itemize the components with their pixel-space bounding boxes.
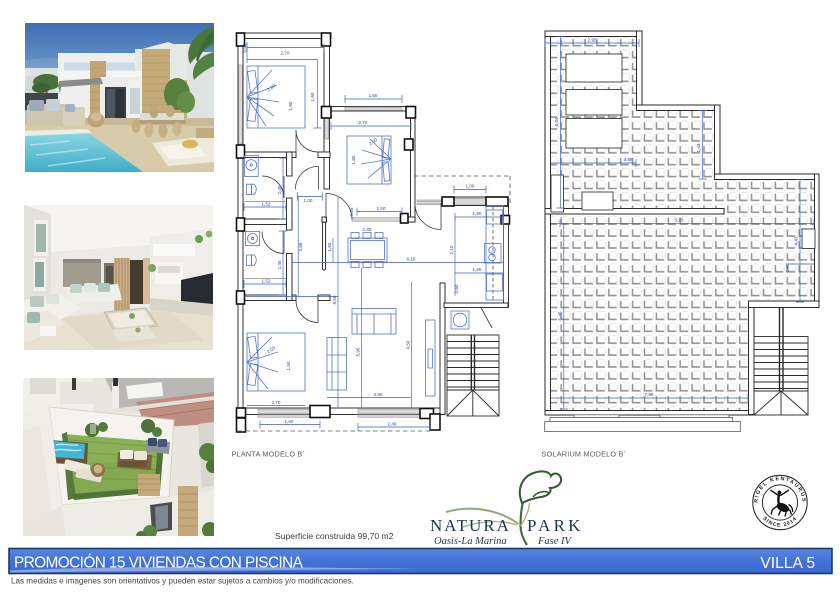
svg-text:3,86: 3,86: [298, 242, 303, 251]
svg-text:1,60: 1,60: [377, 206, 386, 211]
svg-text:1,50: 1,50: [286, 361, 291, 370]
svg-text:6,50: 6,50: [332, 295, 337, 304]
svg-text:6,15: 6,15: [407, 257, 416, 262]
svg-text:1,00: 1,00: [466, 184, 475, 189]
svg-text:3,85: 3,85: [624, 157, 633, 162]
svg-text:SOLARIUM MODELO B´: SOLARIUM MODELO B´: [542, 450, 627, 459]
svg-text:4,50: 4,50: [406, 340, 411, 349]
svg-text:0,65: 0,65: [349, 207, 354, 216]
svg-text:6,04: 6,04: [554, 117, 559, 126]
svg-text:2,70: 2,70: [272, 400, 281, 405]
svg-text:1,60: 1,60: [310, 92, 315, 101]
svg-text:2,70: 2,70: [359, 120, 368, 125]
svg-text:2,45: 2,45: [277, 260, 282, 269]
svg-text:5,45: 5,45: [558, 311, 563, 320]
svg-text:1,80: 1,80: [288, 101, 293, 110]
svg-text:2,40: 2,40: [388, 422, 397, 427]
svg-text:0,65: 0,65: [242, 43, 247, 52]
svg-text:5,95: 5,95: [356, 347, 361, 356]
svg-text:1,80: 1,80: [351, 155, 356, 164]
svg-text:5,26: 5,26: [675, 218, 684, 223]
svg-text:0,60: 0,60: [454, 284, 459, 293]
svg-text:1,90: 1,90: [473, 267, 482, 272]
svg-text:4,43: 4,43: [794, 236, 799, 245]
svg-text:2,95: 2,95: [588, 38, 597, 43]
svg-text:2,00: 2,00: [368, 137, 379, 146]
svg-text:1,52: 1,52: [262, 279, 271, 284]
svg-text:3,90: 3,90: [374, 392, 383, 397]
svg-text:2,45: 2,45: [277, 185, 282, 194]
svg-text:Fase IV: Fase IV: [537, 536, 573, 547]
svg-text:2,00: 2,00: [266, 83, 277, 92]
svg-text:1,43: 1,43: [696, 143, 701, 152]
svg-text:2,85: 2,85: [363, 227, 372, 232]
svg-text:Superficie construida 99,70 m2: Superficie construida 99,70 m2: [275, 531, 394, 541]
svg-text:1,60: 1,60: [285, 419, 294, 424]
svg-text:Las medidas e imagenes son ori: Las medidas e imagenes son orientativos …: [11, 577, 354, 586]
svg-text:NATURA: NATURA: [430, 516, 511, 535]
svg-text:7,95: 7,95: [645, 392, 654, 397]
svg-text:Oasis-La Marina: Oasis-La Marina: [434, 536, 507, 547]
svg-text:1,00: 1,00: [304, 198, 313, 203]
svg-text:1,60: 1,60: [369, 93, 378, 98]
svg-text:PARK: PARK: [527, 516, 584, 535]
svg-text:2,10: 2,10: [449, 245, 454, 254]
svg-text:1,90: 1,90: [473, 211, 482, 216]
svg-text:0,60: 0,60: [785, 263, 790, 272]
svg-text:1,60: 1,60: [327, 242, 332, 251]
svg-text:VILLA 5: VILLA 5: [760, 555, 815, 572]
svg-text:PROMOCIÓN 15 VIVIENDAS CON PIS: PROMOCIÓN 15 VIVIENDAS CON PISCINA: [14, 555, 304, 572]
svg-text:2,70: 2,70: [281, 51, 290, 56]
svg-text:1,52: 1,52: [262, 202, 271, 207]
svg-text:PLANTA MODELO B´: PLANTA MODELO B´: [232, 450, 306, 459]
